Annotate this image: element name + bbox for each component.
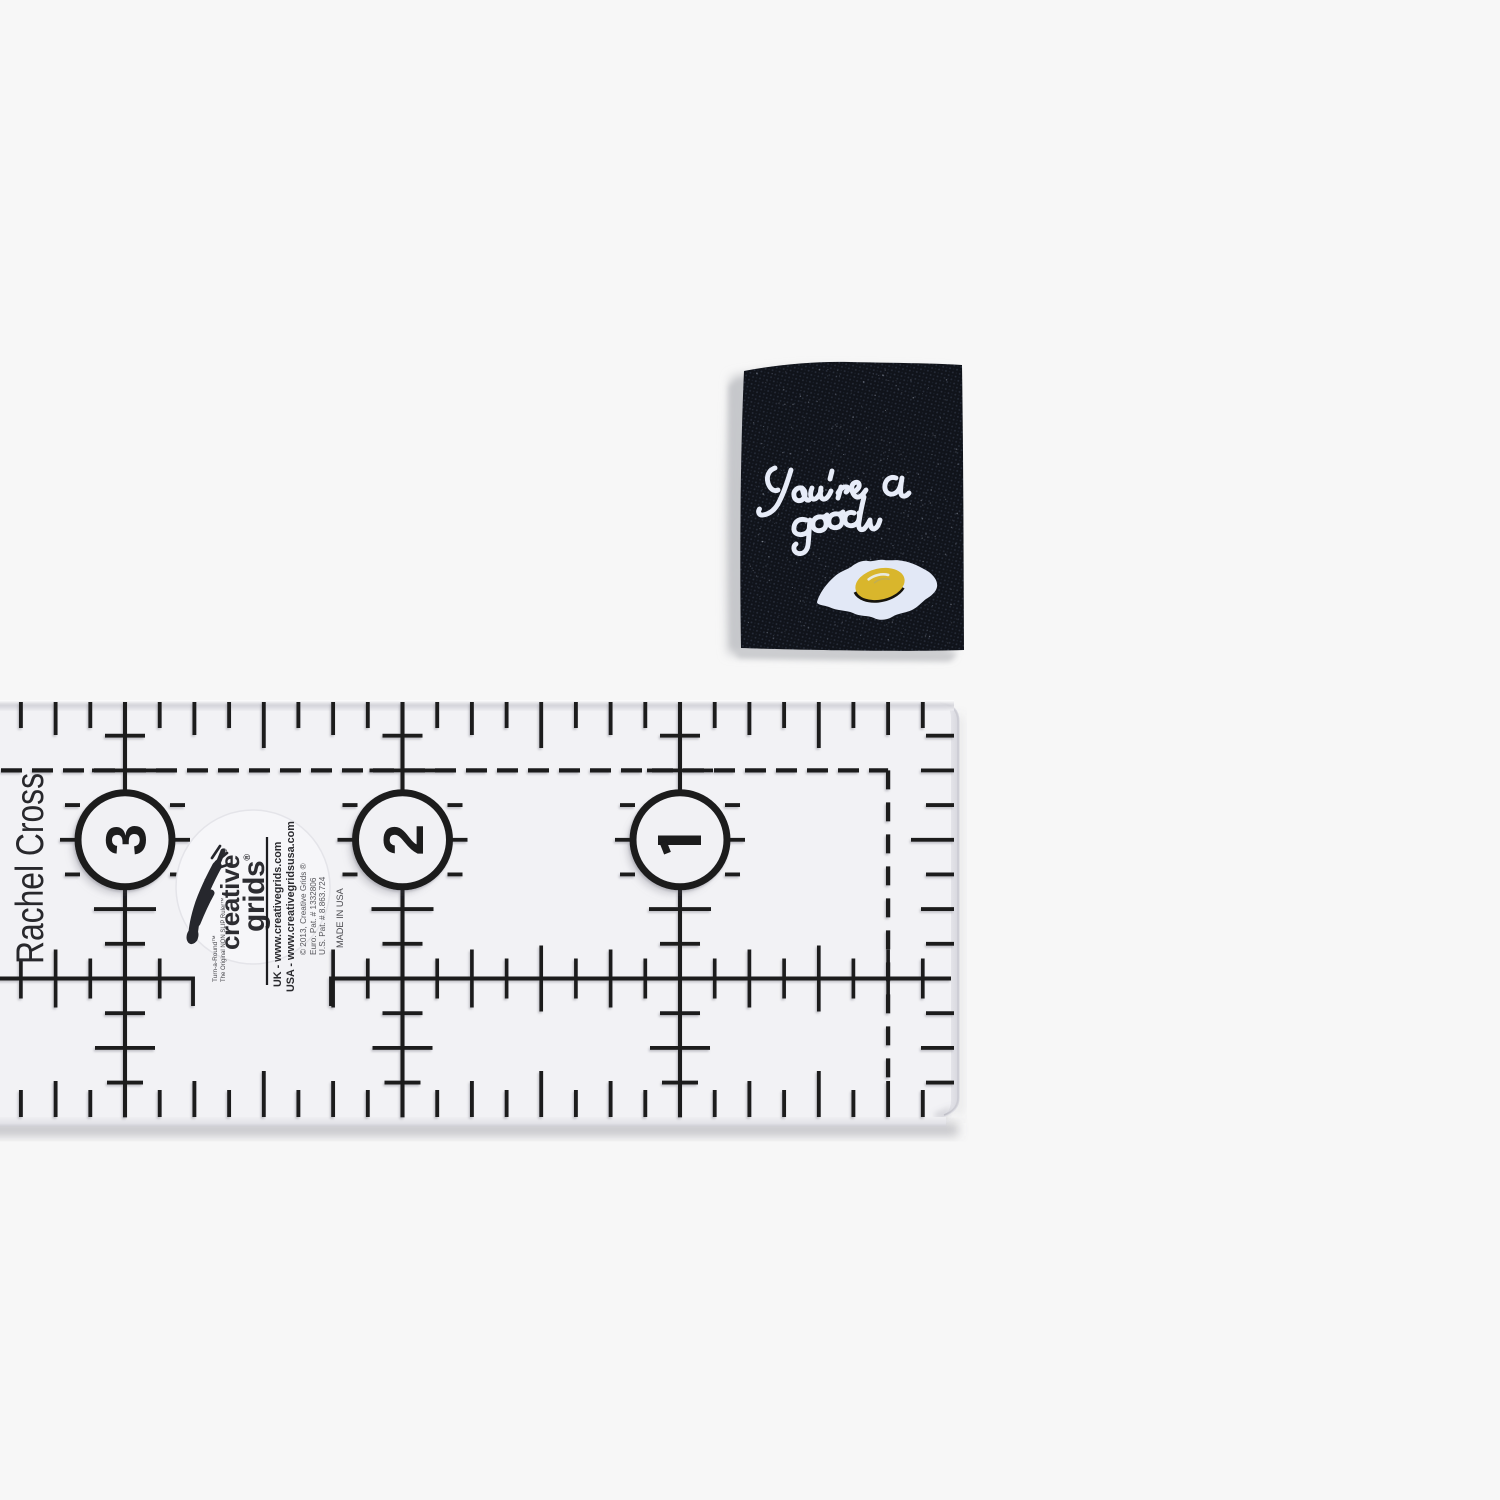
- svg-text:USA - www.creativegridsusa.com: USA - www.creativegridsusa.com: [285, 821, 297, 992]
- svg-text:The Original NON SLIP Ruler™: The Original NON SLIP Ruler™: [220, 898, 227, 982]
- svg-text:2: 2: [372, 824, 436, 856]
- svg-text:Rachel Cross: Rachel Cross: [9, 773, 52, 964]
- svg-text:MADE IN USA: MADE IN USA: [335, 887, 345, 948]
- svg-text:© 2013, Creative Grids ®: © 2013, Creative Grids ®: [299, 863, 308, 955]
- svg-text:Euro. Pat. # 1332806: Euro. Pat. # 1332806: [309, 877, 318, 955]
- svg-text:3: 3: [95, 824, 159, 856]
- svg-text:Turn-a-Round™: Turn-a-Round™: [212, 935, 219, 982]
- svg-text:U.S. Pat. # 8.863.724: U.S. Pat. # 8.863.724: [318, 876, 327, 955]
- svg-text:UK - www.creativegrids.com: UK - www.creativegrids.com: [272, 842, 284, 987]
